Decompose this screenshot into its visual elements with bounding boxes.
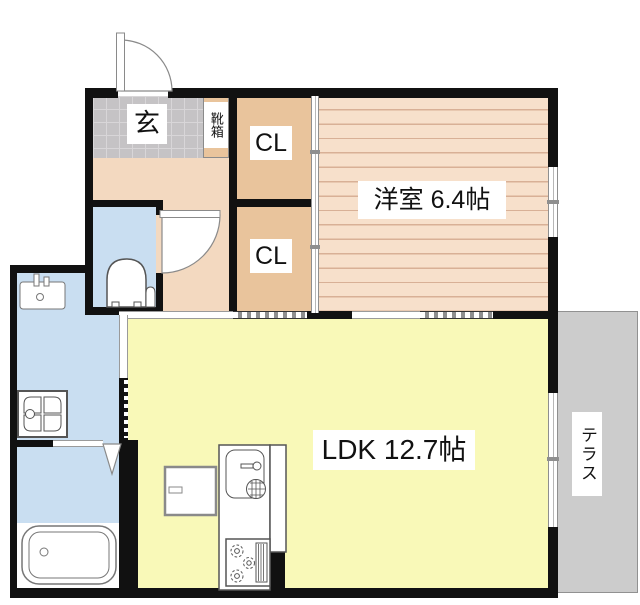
wall-wing-top (10, 265, 85, 273)
wall-bath-stub (17, 440, 53, 447)
hall-ldk-opening (119, 311, 233, 319)
toilet-room-floor (93, 200, 156, 313)
wall-closet-hall (229, 96, 237, 319)
wall-wing-left (10, 265, 17, 598)
western-room-label: 洋室 6.4帖 (358, 181, 506, 219)
sliding-door-closet-ldk (233, 311, 307, 319)
ldk-label: LDK 12.7帖 (313, 430, 475, 470)
shoebox-label: 靴箱 (204, 102, 228, 148)
wall-toilet-top (85, 200, 162, 207)
wall-kitchen-stub (269, 552, 285, 588)
closet-upper-label: CL (250, 126, 292, 160)
wall-wing-bottom (10, 588, 90, 598)
wall-closet-divider (237, 199, 319, 207)
entrance-door (117, 33, 173, 91)
genkan-label: 玄 (127, 104, 167, 144)
wall-top-main (168, 88, 555, 98)
closet-sliding-doors (311, 96, 319, 313)
closet-door-handle-upper (310, 150, 320, 154)
wall-toilet-right-a (156, 200, 163, 215)
bathroom-floor (17, 440, 119, 523)
washroom-sliding-door (124, 380, 128, 438)
wall-right-upper (548, 88, 558, 167)
wall-ldk-seg-b (493, 311, 555, 319)
sliding-track-open (352, 311, 420, 319)
western-window-latch (547, 200, 559, 204)
wall-bathroom-ldk (119, 440, 138, 598)
floorplan: 玄 靴箱 CL CL 洋室 6.4帖 LDK 12.7帖 テラス (0, 0, 640, 605)
bathtub-zone (17, 523, 122, 588)
terrace-label: テラス (572, 412, 602, 496)
sliding-door-western-ldk (420, 311, 493, 319)
closet-lower-label: CL (250, 239, 292, 273)
closet-door-handle-lower (310, 245, 320, 249)
washroom-door-track (119, 315, 128, 378)
wall-bottom-main (85, 588, 555, 598)
bathroom-doorway (53, 440, 103, 447)
ldk-window-meeting-rail (547, 457, 559, 461)
